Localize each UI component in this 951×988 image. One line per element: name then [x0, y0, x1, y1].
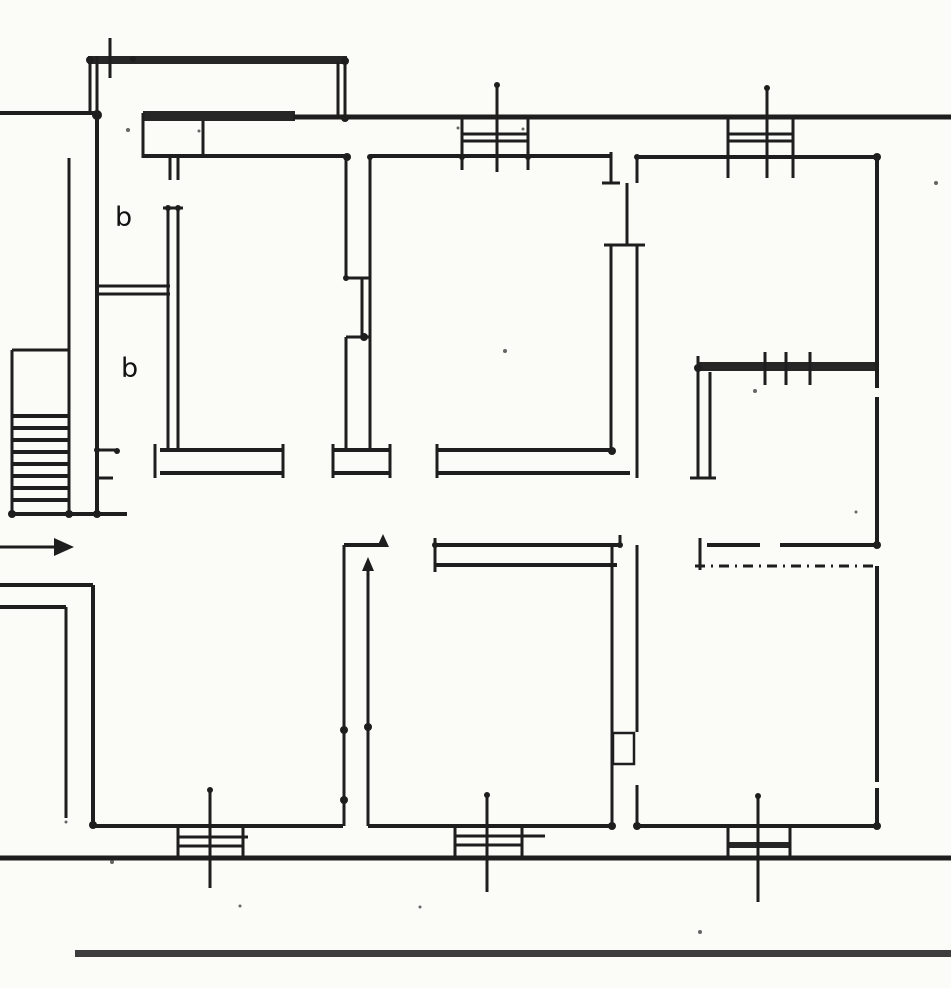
wall-h	[728, 133, 793, 136]
wall-v	[345, 158, 348, 278]
wall-v	[436, 444, 439, 478]
wall-v	[757, 796, 760, 902]
junction-dot	[633, 822, 641, 830]
junction-dot	[634, 154, 640, 160]
wall-h	[780, 543, 877, 547]
junction-dot	[617, 542, 623, 548]
wall-v	[636, 785, 639, 826]
wall-h	[333, 448, 390, 452]
wall-h	[293, 115, 951, 120]
junction-dot	[873, 541, 881, 549]
wall-v	[636, 545, 639, 732]
junction-dot	[364, 723, 372, 731]
wall-v	[337, 62, 340, 118]
scan-speck	[239, 905, 242, 908]
junction-dot	[484, 792, 490, 798]
wall-v	[169, 157, 172, 180]
wall-v	[142, 113, 145, 158]
wall-v	[344, 62, 347, 118]
scan-speck	[522, 128, 525, 131]
wall-h	[437, 471, 630, 475]
wall-h	[435, 543, 620, 547]
junction-dot	[360, 333, 368, 341]
wall-h	[0, 111, 100, 115]
scan-speck	[698, 930, 702, 934]
wall-v	[167, 208, 170, 450]
junction-dot	[175, 205, 181, 211]
balcony-rail	[88, 56, 347, 64]
junction-dot	[525, 154, 531, 160]
wall-v	[89, 56, 92, 115]
junction-dot	[367, 154, 373, 160]
wall-h	[462, 133, 528, 136]
junction-dot	[89, 821, 97, 829]
scan-speck	[503, 349, 507, 353]
wall-v	[177, 825, 180, 858]
wall-v	[809, 352, 812, 385]
junction-dot	[93, 510, 101, 518]
wall-h	[143, 154, 347, 158]
door-leaf-box	[613, 733, 634, 764]
junction-dot	[494, 82, 500, 88]
scan-speck	[126, 128, 130, 132]
wall-h	[97, 477, 113, 480]
scan-speck	[110, 860, 114, 864]
wall-v	[343, 545, 346, 826]
wall-v	[789, 826, 792, 858]
wall-v	[727, 826, 730, 858]
junction-dot	[608, 447, 616, 455]
wall-h	[160, 471, 283, 475]
room-label-b1: b	[115, 204, 132, 231]
wall-v	[68, 158, 71, 514]
wall-v	[875, 157, 879, 388]
junction-dot	[92, 110, 102, 120]
wall-v	[792, 118, 795, 178]
wall-h	[178, 836, 248, 839]
wall-v	[332, 444, 335, 478]
door-swing-arrow-1-head	[362, 557, 374, 571]
wall-v	[177, 208, 180, 450]
wall-v	[521, 827, 524, 858]
wall-v	[454, 827, 457, 858]
wall-h	[462, 140, 528, 143]
wall-h	[370, 154, 611, 158]
wall-v	[461, 117, 464, 170]
wall-v	[875, 788, 879, 826]
stair-tread	[12, 438, 69, 442]
door-swing-arrow-2-head	[377, 534, 389, 547]
stair-tread	[12, 498, 69, 502]
wall-h	[93, 824, 343, 828]
junction-dot	[114, 448, 120, 454]
wall-v	[610, 152, 613, 183]
wall-v	[486, 795, 489, 892]
floor-plan-drawing	[0, 0, 951, 988]
scan-speck	[65, 821, 68, 824]
junction-dot	[86, 56, 94, 64]
junction-dot	[207, 787, 213, 793]
junction-dot	[343, 153, 351, 161]
top-wall-band	[143, 111, 295, 121]
wall-h	[728, 140, 793, 143]
wall-v	[709, 372, 712, 478]
wall-v	[527, 117, 530, 170]
junction-dot	[343, 275, 349, 281]
junction-dot	[432, 542, 438, 548]
wall-h	[12, 349, 69, 352]
wall-v	[875, 566, 879, 782]
junction-dot	[65, 510, 73, 518]
wall-v	[496, 85, 499, 172]
wall-v	[345, 337, 348, 450]
junction-dot	[873, 153, 881, 161]
wall-v	[766, 88, 769, 178]
wall-v	[369, 156, 372, 450]
wall-v	[91, 585, 95, 825]
wall-v	[636, 245, 639, 478]
wall-h	[0, 605, 66, 609]
scan-speck	[457, 127, 460, 130]
scan-speck	[855, 511, 858, 514]
room-label-b2: b	[121, 355, 138, 382]
stair-tread	[12, 414, 69, 418]
junction-dot	[165, 205, 171, 211]
wall-v	[785, 352, 788, 385]
scan-speck	[753, 389, 757, 393]
wall-v	[361, 278, 364, 337]
wall-v	[177, 157, 180, 180]
junction-dot	[340, 796, 348, 804]
wall-h	[637, 155, 877, 159]
stair-tread	[12, 450, 69, 454]
floor-plan-page: b b	[0, 0, 951, 988]
junction-dot	[130, 56, 136, 62]
wall-h	[333, 471, 390, 475]
wall-v	[610, 245, 613, 450]
wall-v	[367, 563, 370, 826]
wall-h	[0, 583, 93, 587]
wall-v	[95, 115, 99, 514]
wall-h	[707, 543, 760, 547]
junction-dot	[341, 114, 349, 122]
wall-v	[389, 444, 392, 478]
junction-dot	[341, 57, 349, 65]
junction-dot	[340, 726, 348, 734]
stair-tread	[12, 474, 69, 478]
wall-h	[435, 563, 617, 567]
wall-h	[0, 856, 951, 861]
wall-v	[242, 825, 245, 858]
wall-v	[202, 121, 205, 157]
entrance-arrow-head	[54, 538, 74, 556]
junction-dot	[694, 364, 702, 372]
junction-dot	[8, 510, 16, 518]
wall-h	[97, 285, 170, 288]
scan-speck	[198, 130, 201, 133]
junction-dot	[608, 822, 616, 830]
wall-h	[690, 477, 716, 480]
scan-speck	[934, 181, 938, 185]
wall-h	[368, 824, 612, 828]
wall-v	[96, 56, 99, 115]
wall-v	[209, 790, 212, 888]
thick-interior-wall	[698, 362, 878, 371]
junction-dot	[94, 447, 100, 453]
wall-v	[875, 397, 879, 547]
wall-h	[437, 448, 612, 452]
wall-h	[346, 277, 370, 280]
wall-h	[97, 293, 170, 296]
street-band	[75, 950, 951, 957]
wall-v	[65, 607, 68, 818]
wall-v	[764, 352, 767, 385]
wall-v	[626, 183, 629, 245]
wall-v	[697, 372, 700, 478]
wall-v	[109, 38, 112, 78]
stair-tread	[12, 462, 69, 466]
junction-dot	[755, 793, 761, 799]
junction-dot	[459, 154, 465, 160]
wall-v	[154, 444, 157, 478]
wall-v	[727, 118, 730, 178]
junction-dot	[873, 822, 881, 830]
junction-dot	[764, 85, 770, 91]
wall-v	[282, 444, 285, 478]
wall-h	[455, 835, 545, 838]
stair-tread	[12, 486, 69, 490]
wall-v	[636, 157, 639, 183]
wall-v	[611, 545, 614, 826]
scan-speck	[419, 906, 422, 909]
stair-tread	[12, 426, 69, 430]
